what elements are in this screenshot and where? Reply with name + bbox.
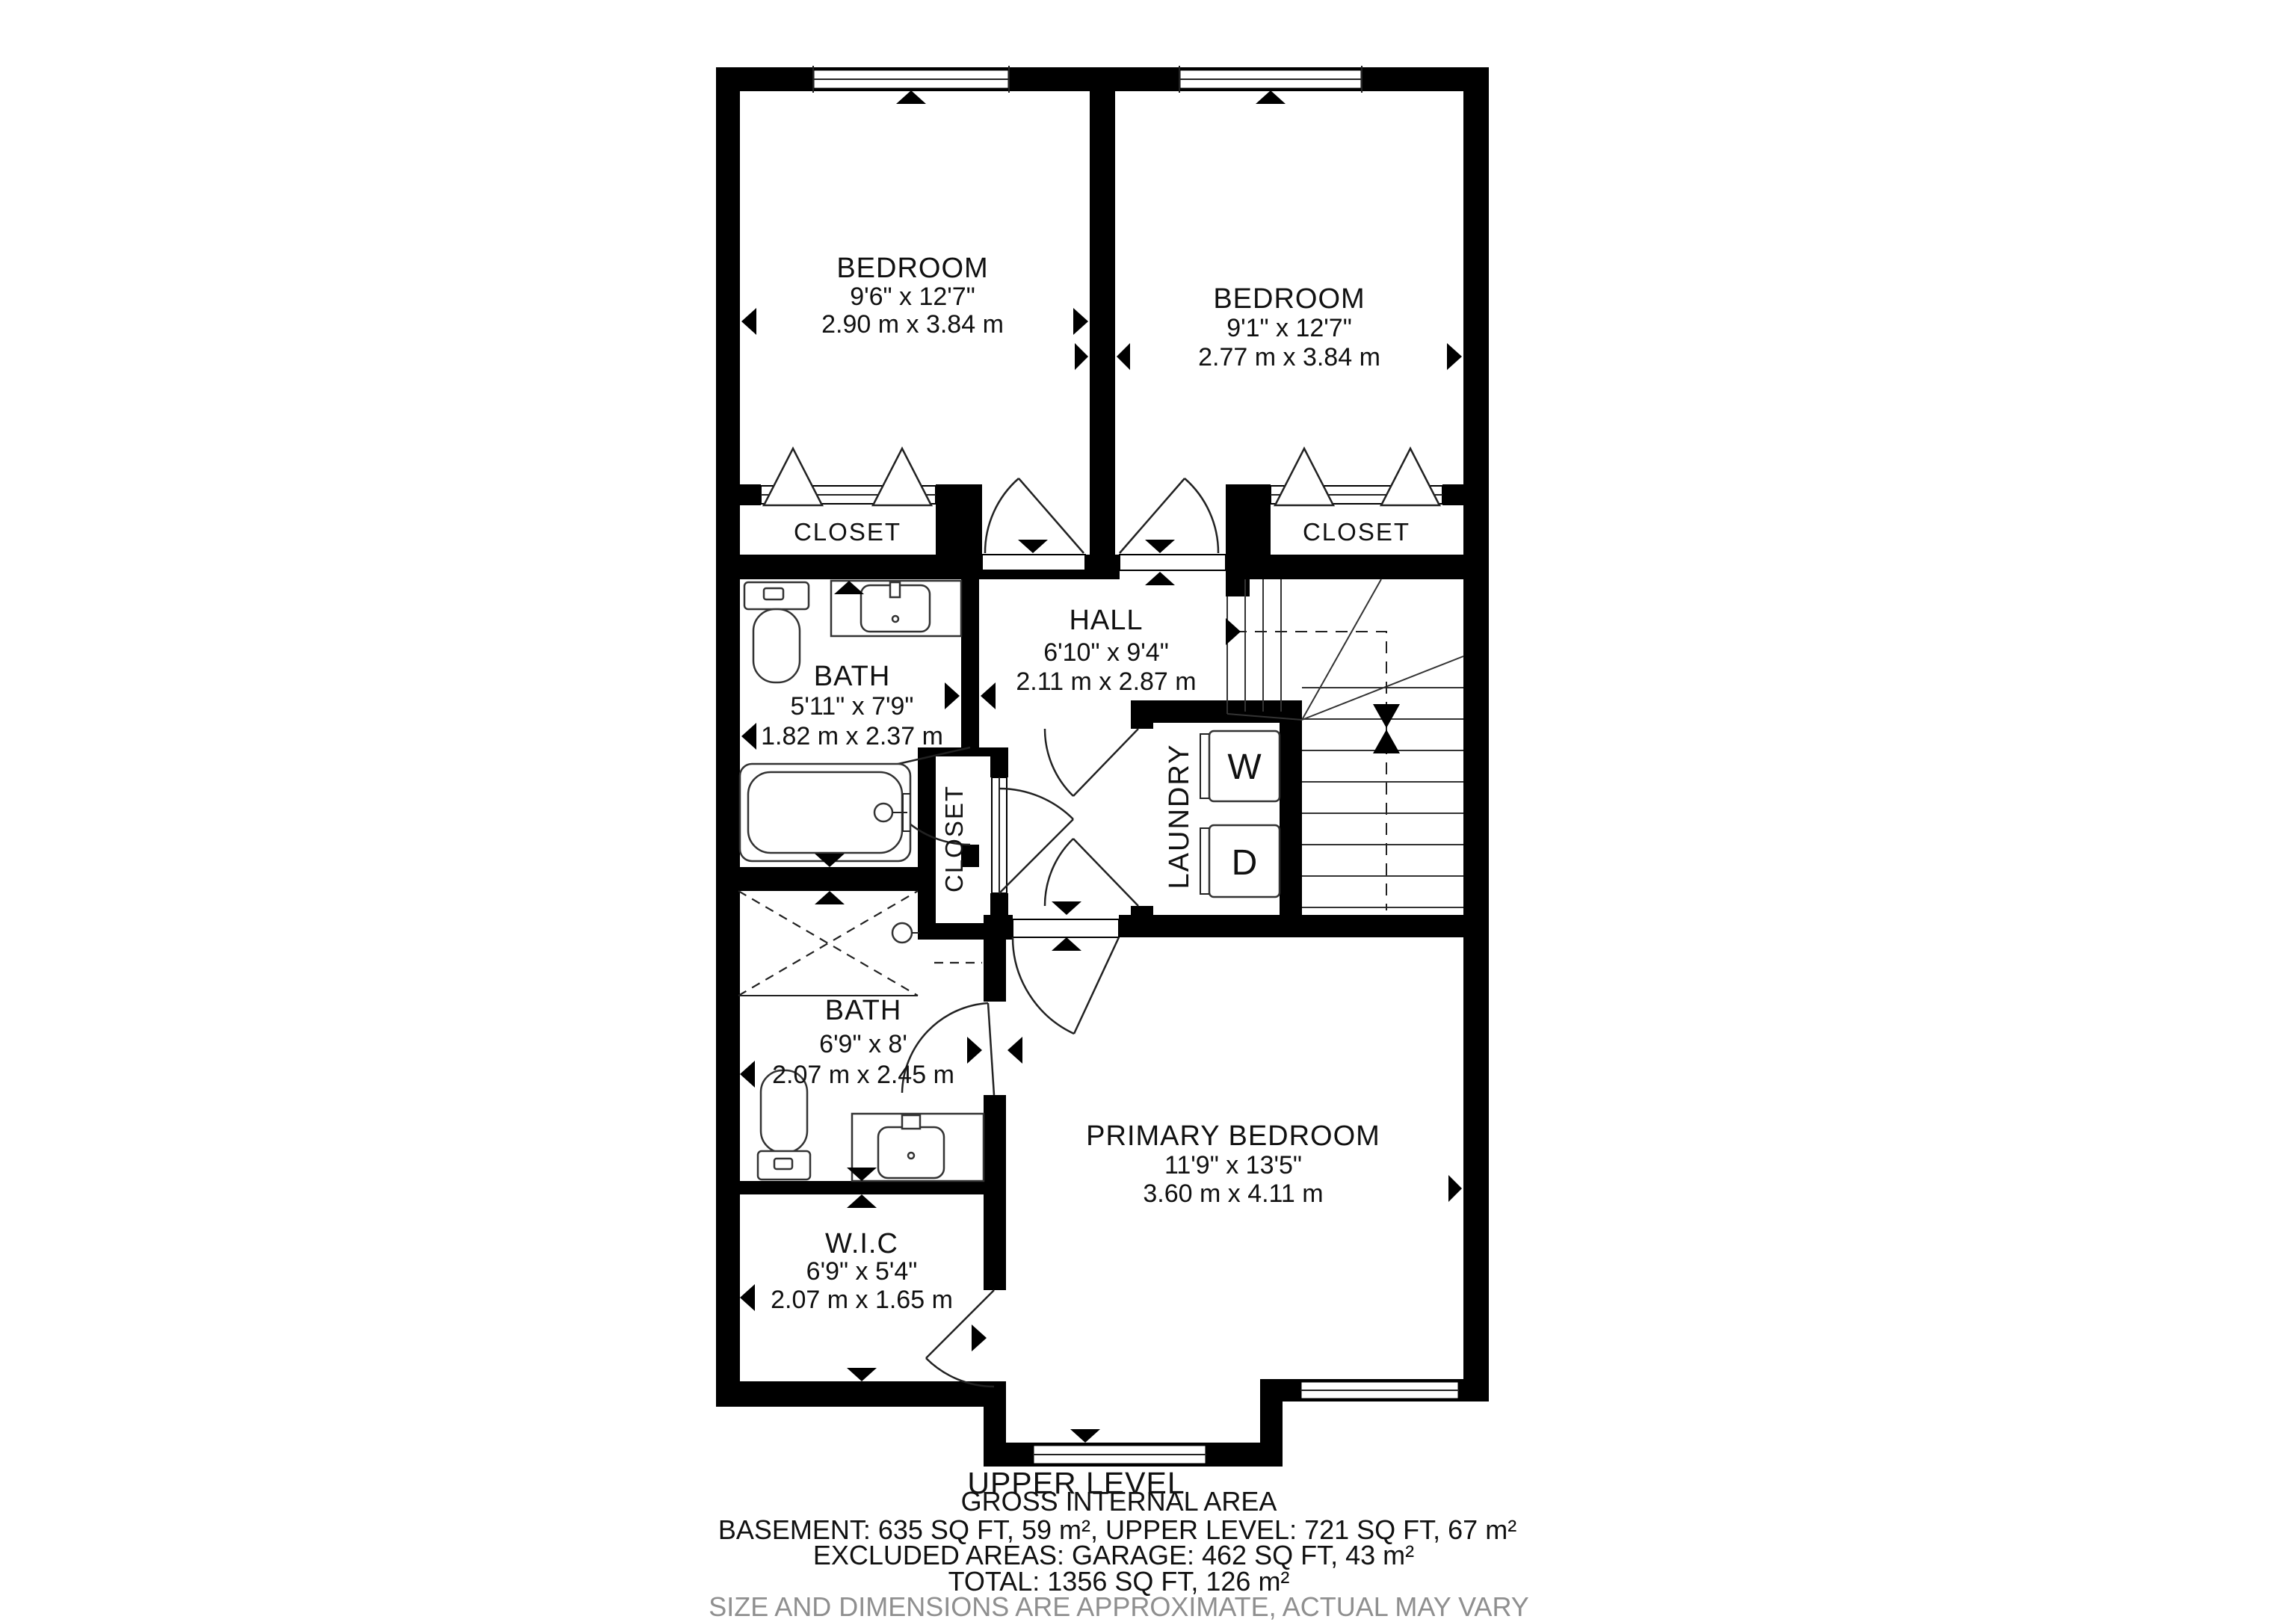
primary-imperial: 11'9" x 13'5"	[1164, 1151, 1302, 1180]
window-primary-bump	[1033, 1445, 1206, 1464]
wic-metric: 2.07 m x 1.65 m	[771, 1286, 953, 1314]
bedroom-left-imperial: 9'6" x 12'7"	[850, 283, 975, 311]
bath-upper-imperial: 5'11" x 7'9"	[790, 692, 913, 721]
closet-left-label: CLOSET	[794, 518, 901, 546]
bedroom-left-door-sill	[982, 555, 1085, 570]
hall-name: HALL	[1069, 605, 1143, 636]
window-bedroom-right	[1179, 66, 1362, 93]
closet-small-front	[992, 777, 1007, 893]
hall-metric: 2.11 m x 2.87 m	[1016, 667, 1196, 696]
bathtub-icon	[740, 764, 910, 861]
dryer-label: D	[1232, 843, 1258, 883]
gross-area-label: GROSS INTERNAL AREA	[961, 1486, 1277, 1517]
closet-right-label: CLOSET	[1303, 518, 1410, 546]
closet-small-label: CLOSET	[940, 785, 968, 892]
primary-metric: 3.60 m x 4.11 m	[1143, 1180, 1323, 1208]
bedroom-right-door-sill	[1120, 555, 1226, 570]
bedroom-left-metric: 2.90 m x 3.84 m	[821, 310, 1004, 339]
laundry-label: LAUNDRY	[1164, 744, 1195, 889]
bath-lower-name: BATH	[825, 995, 902, 1026]
bath-upper-name: BATH	[814, 661, 891, 692]
wic-name: W.I.C	[825, 1228, 898, 1259]
bedroom-left-name: BEDROOM	[836, 253, 988, 284]
hall-imperial: 6'10" x 9'4"	[1043, 638, 1169, 667]
bedroom-right-metric: 2.77 m x 3.84 m	[1198, 343, 1380, 371]
background	[0, 0, 2296, 1622]
bath-lower-imperial: 6'9" x 8'	[819, 1030, 907, 1058]
floor-plan-page: BEDROOM 9'6" x 12'7" 2.90 m x 3.84 m BED…	[0, 0, 2296, 1622]
window-bedroom-left	[813, 66, 1009, 93]
primary-opening-sill	[1013, 919, 1119, 937]
bath-lower-metric: 2.07 m x 2.45 m	[772, 1061, 954, 1089]
floor-plan: BEDROOM 9'6" x 12'7" 2.90 m x 3.84 m BED…	[0, 0, 2296, 1622]
window-primary-right	[1300, 1381, 1459, 1399]
bedroom-right-imperial: 9'1" x 12'7"	[1226, 314, 1352, 342]
toilet-icon	[744, 582, 809, 682]
bath-upper-metric: 1.82 m x 2.37 m	[761, 722, 943, 750]
washer-label: W	[1227, 747, 1262, 787]
bedroom-right-name: BEDROOM	[1213, 283, 1365, 315]
primary-name: PRIMARY BEDROOM	[1086, 1120, 1380, 1152]
disclaimer: SIZE AND DIMENSIONS ARE APPROXIMATE, ACT…	[709, 1591, 1529, 1622]
wic-imperial: 6'9" x 5'4"	[806, 1257, 918, 1286]
